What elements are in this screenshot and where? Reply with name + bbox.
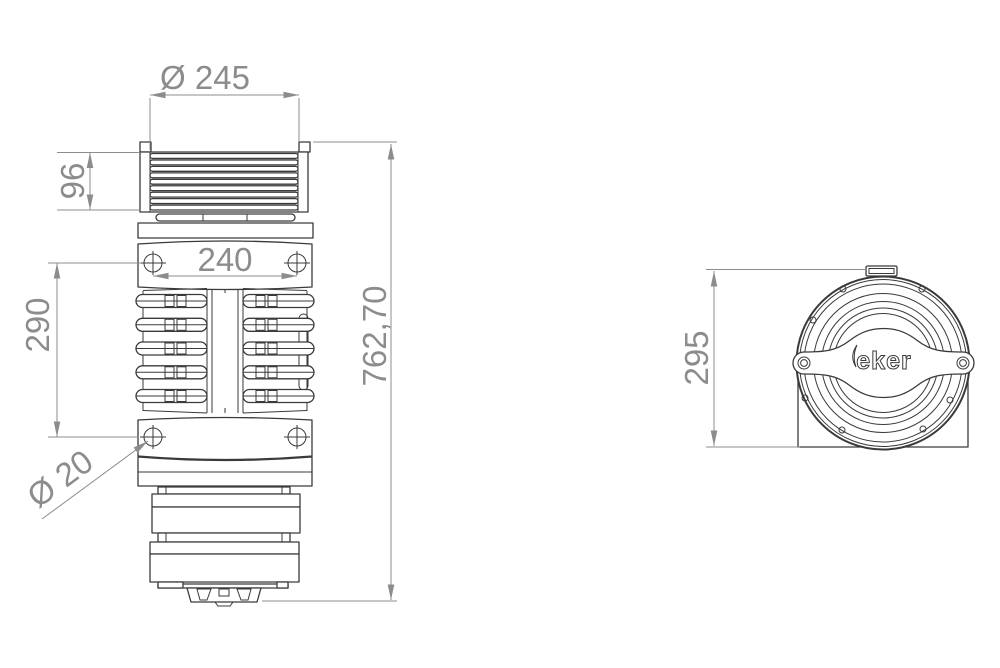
dimension-screw-diameter: Ø 20 (20, 441, 148, 519)
top-tab (866, 266, 897, 276)
drawing-canvas: eker Ø 245 96 240 290 (0, 0, 1000, 668)
dimension-top-diameter: Ø 245 (150, 59, 299, 150)
dim-label-side-view-height: 295 (678, 330, 715, 385)
lower-bracket (138, 418, 312, 487)
dim-label-fin-stack-height: 96 (54, 163, 91, 200)
heatsink-fins (150, 154, 298, 211)
heatsink-tab-left (140, 142, 151, 152)
technical-drawing: eker Ø 245 96 240 290 (0, 0, 1000, 668)
dim-label-overall-length: 762,70 (356, 286, 393, 387)
dimension-fin-stack-height: 96 (54, 153, 140, 211)
logo-text: eker (856, 347, 911, 375)
dim-label-screw-diameter: Ø 20 (20, 442, 100, 514)
body-stack (150, 487, 300, 606)
dimension-screw-spacing-vertical: 290 (19, 263, 141, 437)
coil-fins-left (136, 295, 207, 403)
coil-section (136, 289, 314, 414)
heatsink-tab-right (299, 142, 310, 152)
coil-fins-right (243, 295, 314, 403)
front-view (136, 142, 314, 606)
heatsink-base-plate (138, 223, 313, 238)
bottom-connector (187, 588, 261, 606)
front-face: eker (793, 266, 974, 450)
side-view: eker (793, 266, 974, 450)
dim-label-screw-spacing-horizontal: 240 (197, 241, 252, 278)
brand-logo: eker (853, 345, 912, 375)
heatsink (138, 142, 313, 238)
dim-label-screw-spacing-vertical: 290 (19, 297, 56, 352)
dim-label-top-diameter: Ø 245 (160, 59, 250, 96)
